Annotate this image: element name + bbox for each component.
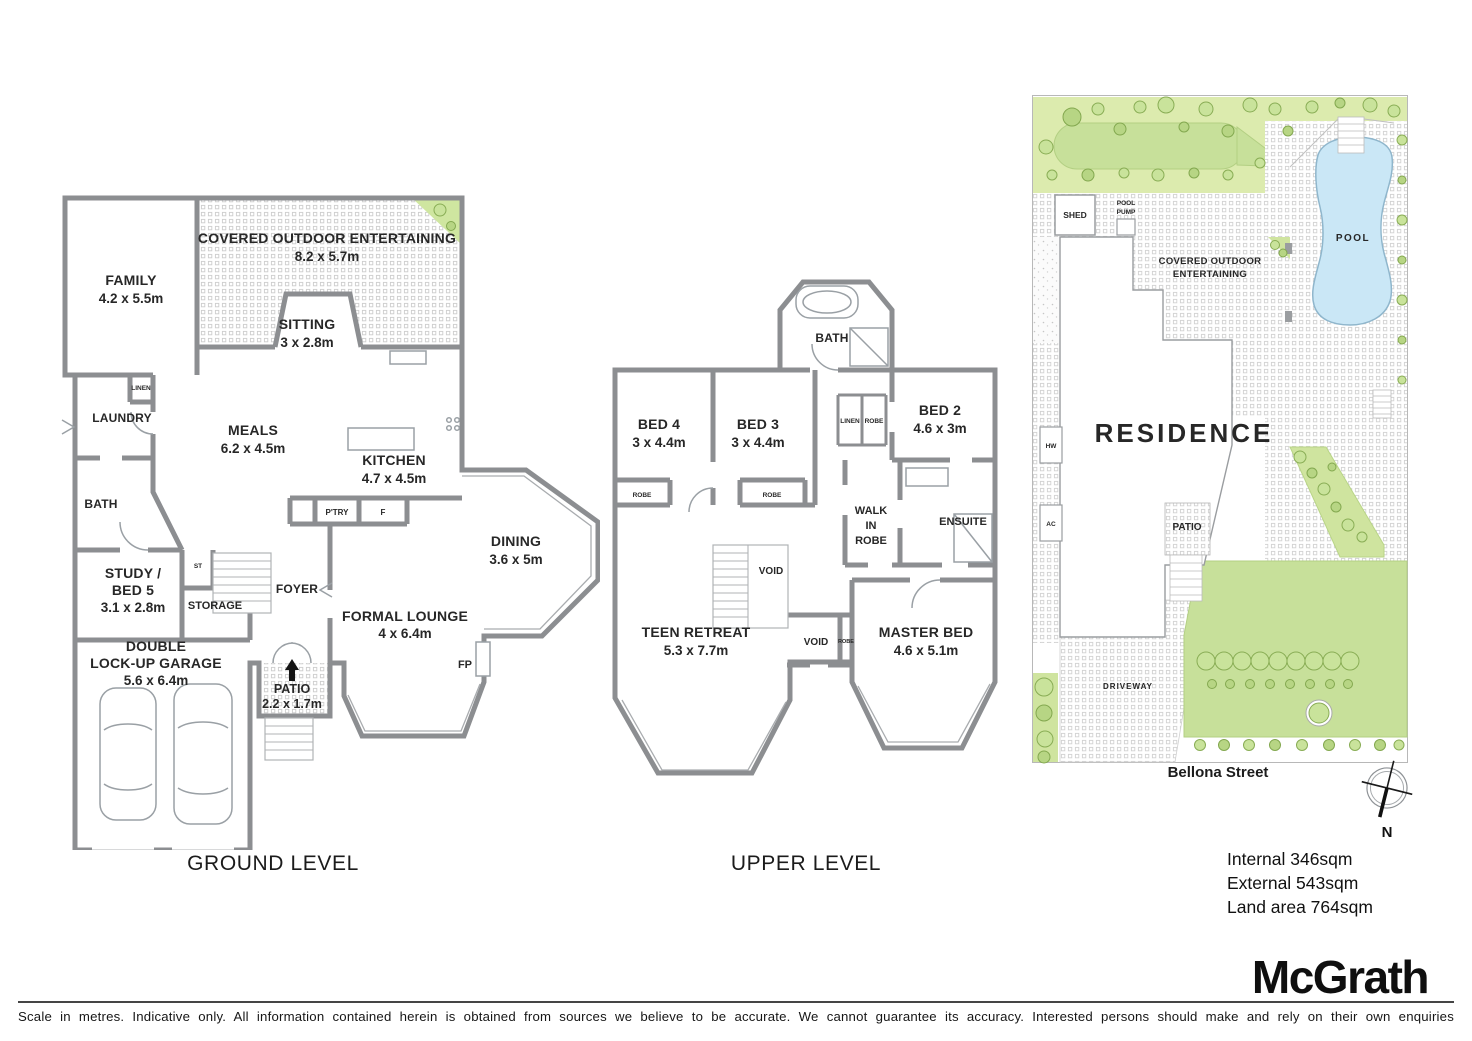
room-label-robe-bed4: ROBE xyxy=(633,492,652,499)
pool-pump-unit xyxy=(1117,219,1135,235)
room-label-garage1: DOUBLE xyxy=(126,638,186,654)
room-label-garage2: LOCK-UP GARAGE xyxy=(90,655,222,671)
site-label-coe2: ENTERTAINING xyxy=(1173,269,1247,280)
site-plan: SHED POOL PUMP COVERED OUTDOOR ENTERTAIN… xyxy=(1032,95,1408,765)
room-label-wir1: WALK xyxy=(855,505,887,517)
upper-exterior-walls xyxy=(615,282,995,773)
room-label-laundry: LAUNDRY xyxy=(92,411,152,425)
ensuite-fixtures xyxy=(906,468,992,562)
feature-tree xyxy=(1306,700,1332,726)
room-label-study: STUDY / xyxy=(105,565,161,581)
room-label-bath: BATH xyxy=(84,497,117,511)
room-dims-teen: 5.3 x 7.7m xyxy=(664,643,729,658)
room-label-sitting: SITTING xyxy=(279,316,336,332)
room-label-wir2: IN xyxy=(866,520,877,532)
room-dims-covered: 8.2 x 5.7m xyxy=(295,249,360,264)
ground-level-plan: FAMILY 4.2 x 5.5m COVERED OUTDOOR ENTERT… xyxy=(60,190,600,850)
side-steps xyxy=(1373,390,1391,418)
room-dims-patio: 2.2 x 1.7m xyxy=(262,697,322,711)
patio-steps xyxy=(265,718,313,760)
site-label-pool: POOL xyxy=(1336,233,1370,244)
room-label-teen: TEEN RETREAT xyxy=(642,624,751,640)
floorplan-page: { "ground": { "title": "GROUND LEVEL", "… xyxy=(0,0,1472,1041)
room-label-bed4: BED 4 xyxy=(638,416,680,432)
room-dims-meals: 6.2 x 4.5m xyxy=(221,441,286,456)
room-label-family: FAMILY xyxy=(105,272,157,288)
room-dims-dining: 3.6 x 5m xyxy=(489,552,542,567)
upper-level-plan: BATH BED 4 3 x 4.4m BED 3 3 x 4.4m LINEN… xyxy=(610,270,1010,890)
shower-icon xyxy=(850,328,888,366)
bathtub-icon xyxy=(796,286,858,318)
room-label-linen: LINEN xyxy=(131,385,151,392)
upper-level-title: UPPER LEVEL xyxy=(731,852,881,876)
room-label-patio: PATIO xyxy=(274,682,311,696)
room-label-wir3: ROBE xyxy=(855,535,887,547)
lawn-rear xyxy=(1184,561,1407,737)
room-label-linen-upper: LINEN xyxy=(840,418,860,425)
room-label-robe-bed3: ROBE xyxy=(763,492,782,499)
site-label-residence: RESIDENCE xyxy=(1095,418,1274,448)
room-label-bed2: BED 2 xyxy=(919,402,961,418)
room-dims-lounge: 4 x 6.4m xyxy=(378,626,431,641)
room-label-kitchen: KITCHEN xyxy=(362,452,426,468)
room-label-pantry: P'TRY xyxy=(326,508,350,517)
entry-arrow-icon xyxy=(62,420,74,434)
car-icon xyxy=(174,684,232,824)
room-dims-master: 4.6 x 5.1m xyxy=(894,643,959,658)
side-path-lower xyxy=(1033,343,1060,643)
room-dims-family: 4.2 x 5.5m xyxy=(99,291,164,306)
fireplace xyxy=(476,642,490,676)
room-label-fridge: F xyxy=(381,508,386,517)
room-label-fp: FP xyxy=(458,659,472,671)
stairs-upper xyxy=(713,545,788,628)
room-dims-kitchen: 4.7 x 4.5m xyxy=(362,471,427,486)
room-label-lounge: FORMAL LOUNGE xyxy=(342,608,468,624)
street-label: Bellona Street xyxy=(1168,764,1269,781)
site-label-ac: AC xyxy=(1046,521,1056,528)
room-label-foyer: FOYER xyxy=(276,582,318,596)
area-summary: Internal 346sqm External 543sqm Land are… xyxy=(1227,847,1373,919)
room-label-bath-upper: BATH xyxy=(815,331,848,345)
room-label-storage: STORAGE xyxy=(188,600,242,612)
car-icon xyxy=(100,688,156,820)
disclaimer: Scale in metres. Indicative only. All in… xyxy=(18,1001,1454,1024)
room-label-robe-hall: ROBE xyxy=(865,418,884,425)
site-label-poolpump2: PUMP xyxy=(1117,209,1136,216)
room-label-bed3: BED 3 xyxy=(737,416,779,432)
room-label-robe-master: ROBE xyxy=(838,639,854,645)
room-label-study2: BED 5 xyxy=(112,582,154,598)
external-area: External 543sqm xyxy=(1227,871,1373,895)
room-label-void-stairs: VOID xyxy=(759,566,783,577)
site-label-driveway: DRIVEWAY xyxy=(1103,682,1153,691)
room-label-meals: MEALS xyxy=(228,422,278,438)
room-dims-garage: 5.6 x 6.4m xyxy=(124,673,189,688)
land-area: Land area 764sqm xyxy=(1227,895,1373,919)
side-path xyxy=(1033,237,1060,343)
room-dims-sitting: 3 x 2.8m xyxy=(280,335,333,350)
site-label-hw: HW xyxy=(1046,443,1058,450)
pool xyxy=(1313,137,1393,325)
internal-area: Internal 346sqm xyxy=(1227,847,1373,871)
room-label-covered: COVERED OUTDOOR ENTERTAINING xyxy=(198,230,456,246)
site-label-shed: SHED xyxy=(1063,210,1087,220)
room-label-ensuite: ENSUITE xyxy=(939,516,987,528)
room-label-master: MASTER BED xyxy=(879,624,974,640)
room-dims-bed2: 4.6 x 3m xyxy=(913,421,966,436)
site-label-poolpump1: POOL xyxy=(1117,200,1135,207)
lounge-bay-window xyxy=(348,684,480,731)
room-dims-study: 3.1 x 2.8m xyxy=(101,600,166,615)
room-label-dining: DINING xyxy=(491,533,541,549)
kitchen-fixtures xyxy=(348,351,459,450)
site-patio-steps xyxy=(1170,555,1202,601)
site-label-coe1: COVERED OUTDOOR xyxy=(1159,256,1262,267)
mcgrath-logo: McGrath xyxy=(1252,950,1428,1004)
room-dims-bed4: 3 x 4.4m xyxy=(632,435,685,450)
post xyxy=(1285,311,1292,322)
room-label-st: ST xyxy=(194,563,202,570)
compass-icon: N xyxy=(1352,756,1422,840)
room-dims-bed3: 3 x 4.4m xyxy=(731,435,784,450)
ground-level-title: GROUND LEVEL xyxy=(187,852,359,876)
site-label-patio: PATIO xyxy=(1172,522,1201,533)
room-label-void2: VOID xyxy=(804,637,828,648)
compass-north-label: N xyxy=(1382,824,1393,840)
